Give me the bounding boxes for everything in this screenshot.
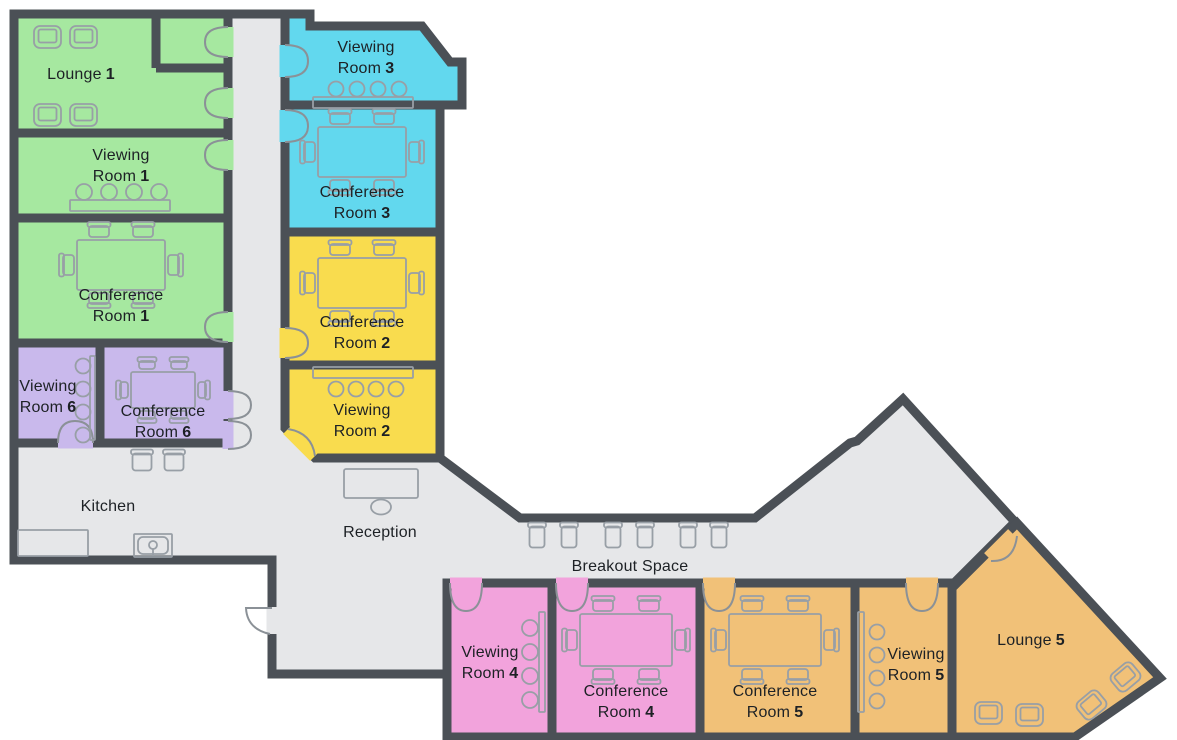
room-name-text: Lounge: [47, 66, 102, 83]
floor-plan-page: Lounge1ViewingRoom1ConferenceRoom1Viewin…: [0, 0, 1177, 740]
room-name-text: Viewing: [887, 646, 944, 663]
room-name-text: Conference: [79, 287, 164, 304]
room-name-text2: Room: [334, 423, 377, 440]
room-name-text: Viewing: [92, 147, 149, 164]
room-name-text2: Room: [598, 704, 641, 721]
area-label-kitchen: Kitchen: [81, 498, 136, 515]
room-number-text: 1: [140, 168, 149, 185]
room-name-text: Viewing: [19, 378, 76, 395]
room-name-text: Viewing: [333, 402, 390, 419]
room-name-text2: Room: [93, 168, 136, 185]
room-number-text: 3: [381, 205, 390, 222]
area-name-text: Breakout Space: [572, 558, 689, 575]
room-name-text2: Room: [135, 424, 178, 441]
room-number-text: 4: [509, 665, 518, 682]
room-number-text: 4: [645, 704, 654, 721]
room-number-text: 1: [140, 308, 149, 325]
room-name-text2: Room: [334, 335, 377, 352]
room-name-text2: Room: [888, 667, 931, 684]
room-name-text: Viewing: [337, 39, 394, 56]
door-icon: [246, 607, 272, 634]
area-label-breakout-space: Breakout Space: [572, 558, 689, 575]
room-number-text: 1: [106, 66, 115, 83]
room-number-text: 6: [182, 424, 191, 441]
room-shape-lounge-1: [14, 14, 228, 133]
room-lounge-1: [14, 14, 228, 133]
room-number-text: 3: [385, 60, 394, 77]
room-number-text: 5: [935, 667, 944, 684]
room-name-text2: Room: [747, 704, 790, 721]
floor-plan: Lounge1ViewingRoom1ConferenceRoom1Viewin…: [0, 0, 1177, 740]
room-name-text2: Room: [334, 205, 377, 222]
room-number-text: 5: [1056, 632, 1065, 649]
room-number-text: 2: [381, 335, 390, 352]
area-name-text: Kitchen: [81, 498, 136, 515]
room-number-text: 6: [67, 399, 76, 416]
room-name-text2: Room: [462, 665, 505, 682]
room-name-text: Conference: [320, 314, 405, 331]
room-name-text: Conference: [584, 683, 669, 700]
area-label-reception: Reception: [343, 524, 417, 541]
room-name-text: Viewing: [461, 644, 518, 661]
room-name-text: Conference: [733, 683, 818, 700]
room-number-text: 5: [794, 704, 803, 721]
room-name-text2: Room: [20, 399, 63, 416]
area-name-text: Reception: [343, 524, 417, 541]
room-name-text2: Room: [338, 60, 381, 77]
room-name-text: Lounge: [997, 632, 1052, 649]
room-number-text: 2: [381, 423, 390, 440]
rooms-layer: [14, 14, 1160, 737]
room-name-text2: Room: [93, 308, 136, 325]
room-name-text: Conference: [320, 184, 405, 201]
room-name-text: Conference: [121, 403, 206, 420]
